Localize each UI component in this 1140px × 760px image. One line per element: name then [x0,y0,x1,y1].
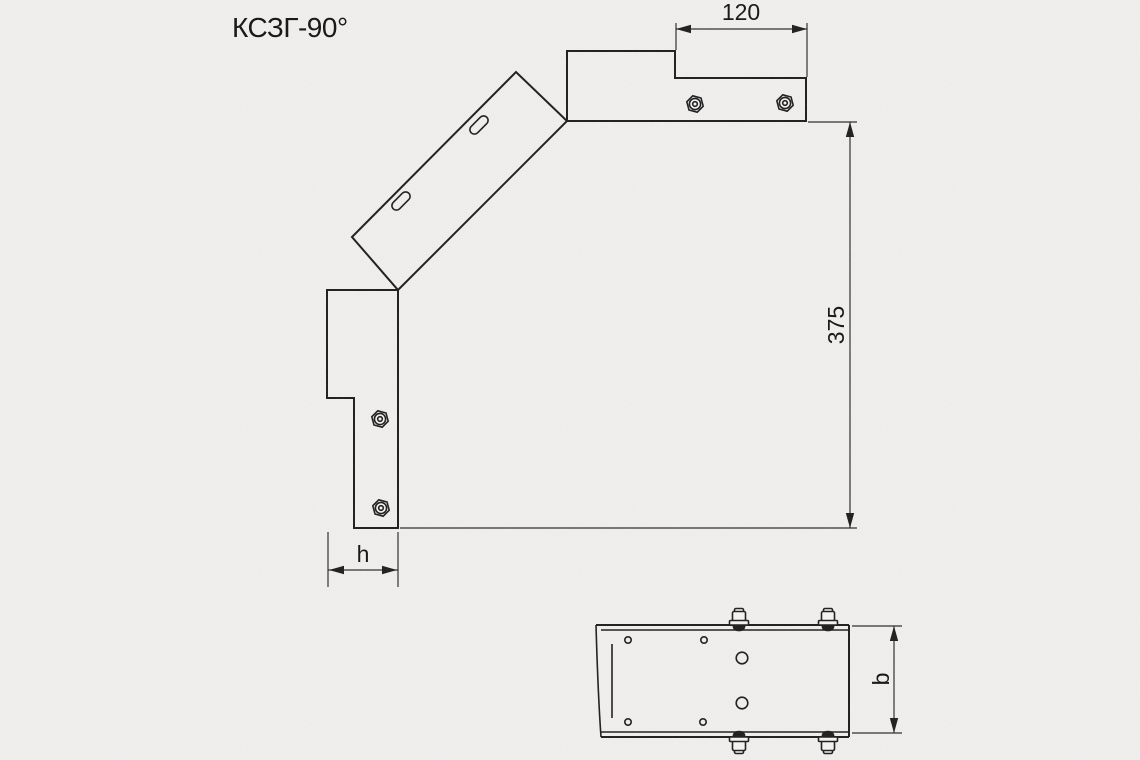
dimension-label: 120 [722,0,760,25]
dimension-label: h [357,541,370,567]
drawing-title: КСЗГ-90° [232,12,348,43]
bolt-fastener-icon [373,500,389,516]
technical-drawing-canvas: КСЗГ-90° 120 375 h [0,0,1140,760]
dimension-label: b [868,673,894,686]
bolt-fastener-icon [372,411,388,427]
dimension-label: 375 [823,306,849,344]
bolt-fastener-icon [687,96,703,112]
bolt-fastener-icon [777,95,793,111]
